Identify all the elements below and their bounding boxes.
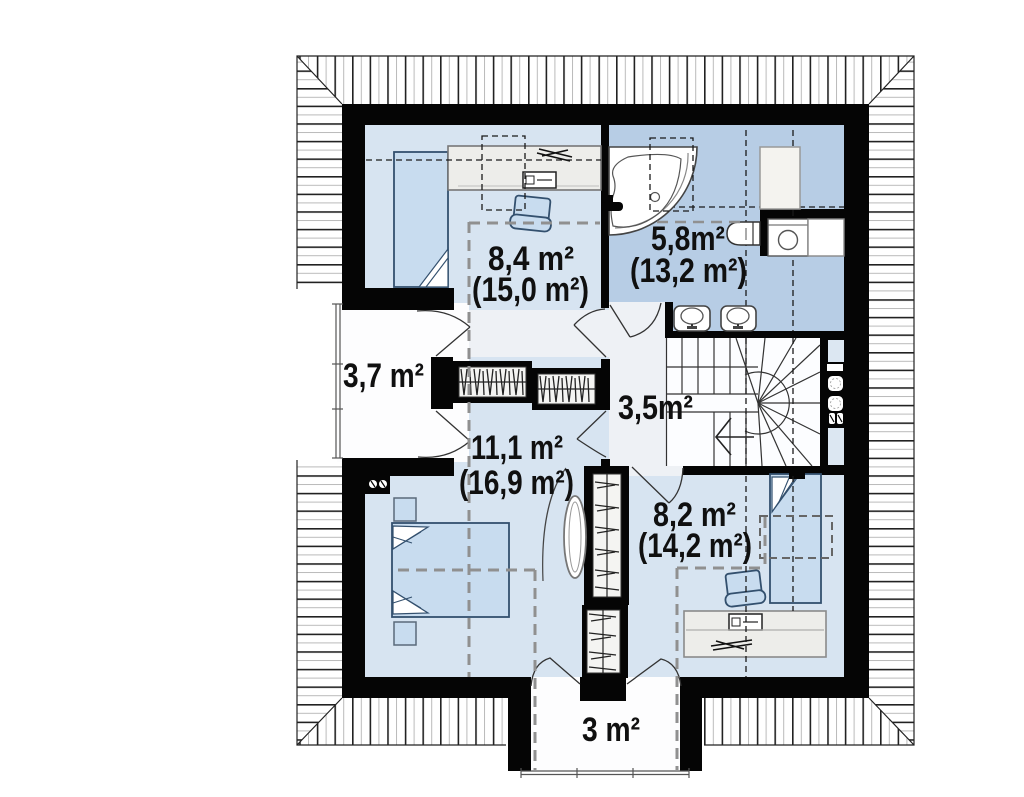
svg-text:3,5m²: 3,5m² [618,389,693,427]
svg-text:(16,9 m²): (16,9 m²) [459,464,574,502]
svg-text:(14,2 m²): (14,2 m²) [638,527,752,565]
svg-text:3 m²: 3 m² [582,711,640,749]
svg-text:(13,2 m²): (13,2 m²) [630,252,747,290]
svg-text:(15,0 m²): (15,0 m²) [472,271,589,309]
svg-text:11,1 m²: 11,1 m² [471,429,563,467]
svg-text:3,7 m²: 3,7 m² [343,357,424,395]
